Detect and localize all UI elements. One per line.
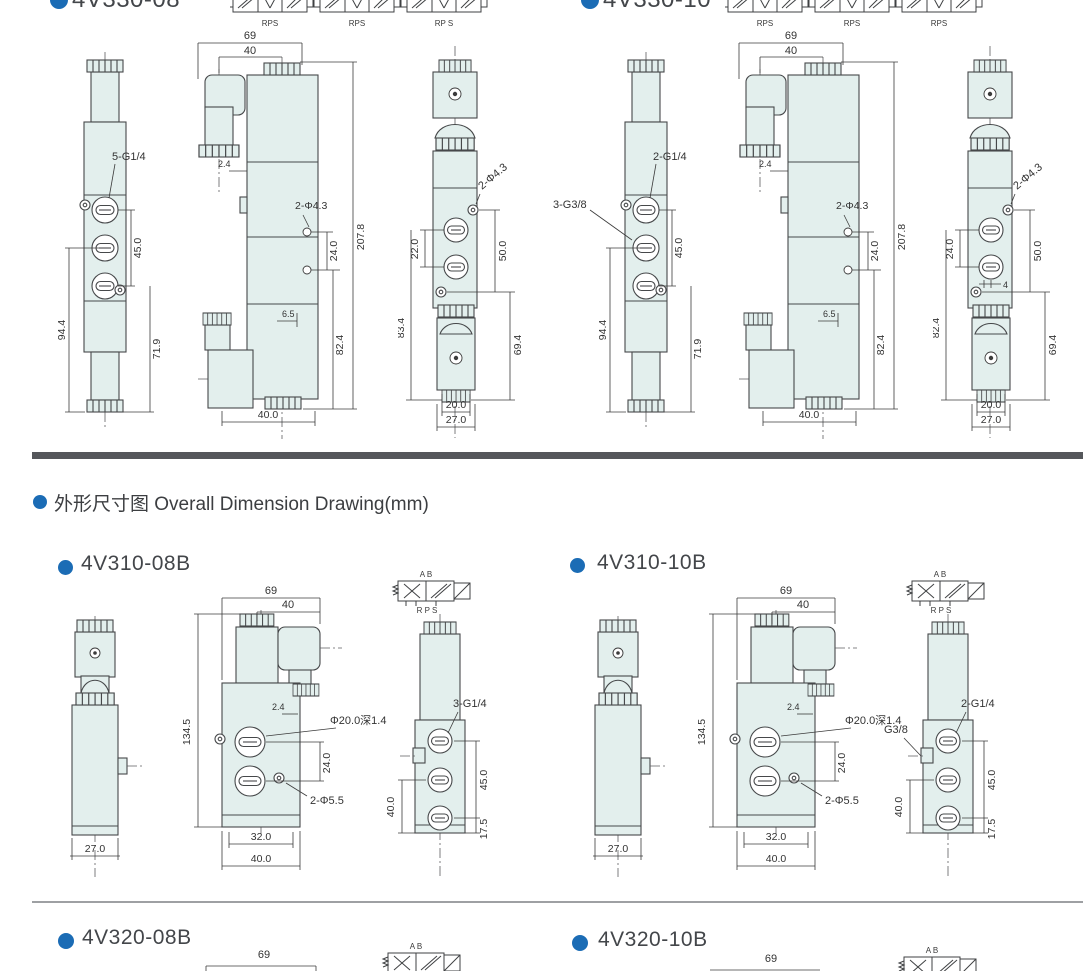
dim-label: 71.9 [151, 339, 163, 360]
bullet-icon [33, 495, 47, 509]
model-title-4v330-10: 4V330-10 [603, 0, 711, 14]
dim-label: 24.0 [321, 753, 333, 774]
drawing-4v330-10-front-view: 69 40 2.4 2-Φ4.3 24.0 207.8 6.5 82.4 40.… [726, 27, 916, 442]
dim-label: 45.0 [673, 238, 685, 259]
hole-label: 2-Φ4.3 [295, 200, 327, 212]
dim-label: 32.0 [766, 831, 787, 843]
section-heading: 外形尺寸图 Overall Dimension Drawing(mm) [54, 489, 429, 516]
drawing-4v310-10b-end-view: 2-G1/4 G3/8 45.0 17.5 40.0 [861, 608, 1031, 883]
symbol-body [383, 953, 460, 971]
valve-outline [595, 632, 650, 835]
model-title-4v310-08b: 4V310-08B [81, 552, 191, 576]
dim-label: 134.5 [181, 719, 193, 745]
dim-label: 20.0 [981, 399, 1002, 411]
dim-label: 40.0 [893, 797, 905, 818]
drawing-4v310-10b-side-view: 27.0 [573, 612, 683, 882]
valve-outline [205, 75, 318, 408]
dim-label: 69.4 [512, 335, 524, 356]
model-title-4v310-10b: 4V310-10B [597, 551, 707, 575]
drawing-4v310-08b-end-view: 3-G1/4 45.0 17.5 40.0 [353, 608, 523, 883]
port-thread-label: 5-G1/4 [112, 151, 146, 163]
dim-label: 6.5 [282, 309, 295, 319]
dim-label: 69.4 [1047, 335, 1059, 356]
dim-label: 94.4 [56, 320, 68, 341]
valve-schematic-symbol-4v320-10b: A B [888, 944, 983, 971]
bullet-icon [50, 0, 68, 9]
drawing-4v330-10-end-view: 2-Φ4.3 24.0 4 82.4 50.0 69.4 20.0 27.0 [933, 38, 1073, 443]
dim-label: 45.0 [132, 238, 144, 259]
symbol-port-letters: RPS [931, 19, 947, 28]
dim-label: 2.4 [272, 702, 285, 712]
dim-label: 40.0 [258, 409, 279, 421]
dim-label: 82.4 [334, 335, 346, 356]
valve-outline [222, 627, 320, 827]
dim-label: 24.0 [328, 241, 340, 262]
dim-label: 27.0 [85, 843, 106, 855]
dim-label: 40.0 [766, 853, 787, 865]
port-thread-label: 3-G3/8 [553, 199, 587, 211]
dim-label: 40.0 [799, 409, 820, 421]
dim-label: 17.5 [478, 819, 490, 840]
port-thread-label: 3-G1/4 [453, 698, 487, 710]
dim-label: 40 [797, 599, 809, 611]
bullet-icon [572, 935, 588, 951]
dim-label: 40.0 [385, 797, 397, 818]
dimension-lines [206, 966, 316, 971]
symbol-port-letters: A B [926, 946, 938, 955]
symbol-port-letters: A B [934, 570, 946, 579]
dim-label: 69 [265, 585, 277, 597]
model-title-4v320-10b: 4V320-10B [598, 928, 708, 952]
dim-label: 207.8 [896, 224, 908, 250]
dim-label: 2.4 [787, 702, 800, 712]
dim-label: 24.0 [836, 753, 848, 774]
dim-label: 40 [282, 599, 294, 611]
thin-divider-line [32, 901, 1083, 903]
dim-label: 40.0 [251, 853, 272, 865]
section-divider-bar [32, 452, 1083, 459]
port-thread-label: 2-G1/4 [961, 698, 995, 710]
hole-label: 2-Φ5.5 [310, 795, 344, 807]
dim-label: 69 [244, 30, 256, 42]
dim-label: 6.5 [823, 309, 836, 319]
drawing-4v330-08-front-view: 69 40 2.4 2-Φ4.3 24.0 207.8 6.5 82.4 40.… [185, 27, 375, 442]
hole-label: 2-Φ4.3 [476, 161, 510, 192]
dim-label: 69 [785, 30, 797, 42]
dim-label: 45.0 [478, 770, 490, 791]
valve-outline [746, 75, 859, 408]
dim-label: 69 [780, 585, 792, 597]
bullet-icon [58, 560, 73, 575]
dim-label: 82.4 [933, 318, 942, 339]
dim-label: 40 [244, 45, 256, 57]
dim-label: 45.0 [986, 770, 998, 791]
symbol-body [899, 957, 976, 971]
dim-label: 32.0 [251, 831, 272, 843]
dim-label: 20.0 [446, 399, 467, 411]
port-thread-label: G3/8 [884, 724, 908, 736]
symbol-port-letters: RP S [435, 19, 454, 28]
symbol-port-letters: A B [420, 570, 432, 579]
dim-label: 22.0 [409, 239, 421, 260]
dim-label: 2.4 [759, 159, 772, 169]
dim-label: 50.0 [1032, 241, 1044, 262]
bullet-icon [581, 0, 599, 9]
bullet-icon [570, 558, 585, 573]
dim-label: 17.5 [986, 819, 998, 840]
dim-label: 24.0 [944, 239, 956, 260]
dim-label: 24.0 [869, 241, 881, 262]
hole-label: 2-Φ4.3 [1011, 161, 1045, 192]
drawing-4v330-08-end-view: 2-Φ4.3 22.0 83.4 50.0 69.4 20.0 27.0 [398, 38, 538, 443]
drawing-4v310-08b-side-view: 27.0 [50, 612, 160, 882]
valve-outline [737, 627, 835, 827]
dim-label: 27.0 [981, 414, 1002, 426]
symbol-port-letters: A B [410, 942, 422, 951]
dim-label: 69 [765, 953, 777, 965]
dim-label: 27.0 [446, 414, 467, 426]
dim-label: 207.8 [355, 224, 367, 250]
valve-schematic-symbol-4v320-08b: A B [372, 940, 467, 971]
hole-label: 2-Φ5.5 [825, 795, 859, 807]
catalog-page: 4V330-08 RPS RPS RP S 5-G1/4 45.0 94.4 7… [0, 0, 1083, 971]
valve-schematic-symbols-4v330-08: RPS RPS RP S [230, 0, 490, 30]
model-title-4v330-08: 4V330-08 [72, 0, 180, 14]
dim-label: 69 [258, 949, 270, 961]
model-title-4v320-08b: 4V320-08B [82, 926, 192, 950]
dim-label: 40 [785, 45, 797, 57]
valve-schematic-symbols-4v330-10: RPS RPS RPS [725, 0, 985, 30]
drawing-4v320-08b-partial-dim: 69 [198, 942, 333, 971]
dim-label: 50.0 [497, 241, 509, 262]
dim-label: 27.0 [608, 843, 629, 855]
hole-label: 2-Φ4.3 [836, 200, 868, 212]
dim-label: 71.9 [692, 339, 704, 360]
dim-label: 2.4 [218, 159, 231, 169]
dim-label: 83.4 [398, 318, 407, 339]
bullet-icon [58, 933, 74, 949]
dim-label: 82.4 [875, 335, 887, 356]
dim-label: 94.4 [597, 320, 609, 341]
drawing-4v320-10b-partial-dim: 69 [705, 946, 845, 971]
port-thread-label: 2-G1/4 [653, 151, 687, 163]
dim-label: 4 [1003, 280, 1008, 290]
valve-outline [72, 632, 127, 835]
dim-label: 134.5 [696, 719, 708, 745]
drawing-4v330-10-side-view: 2-G1/4 3-G3/8 45.0 94.4 71.9 [551, 50, 716, 430]
